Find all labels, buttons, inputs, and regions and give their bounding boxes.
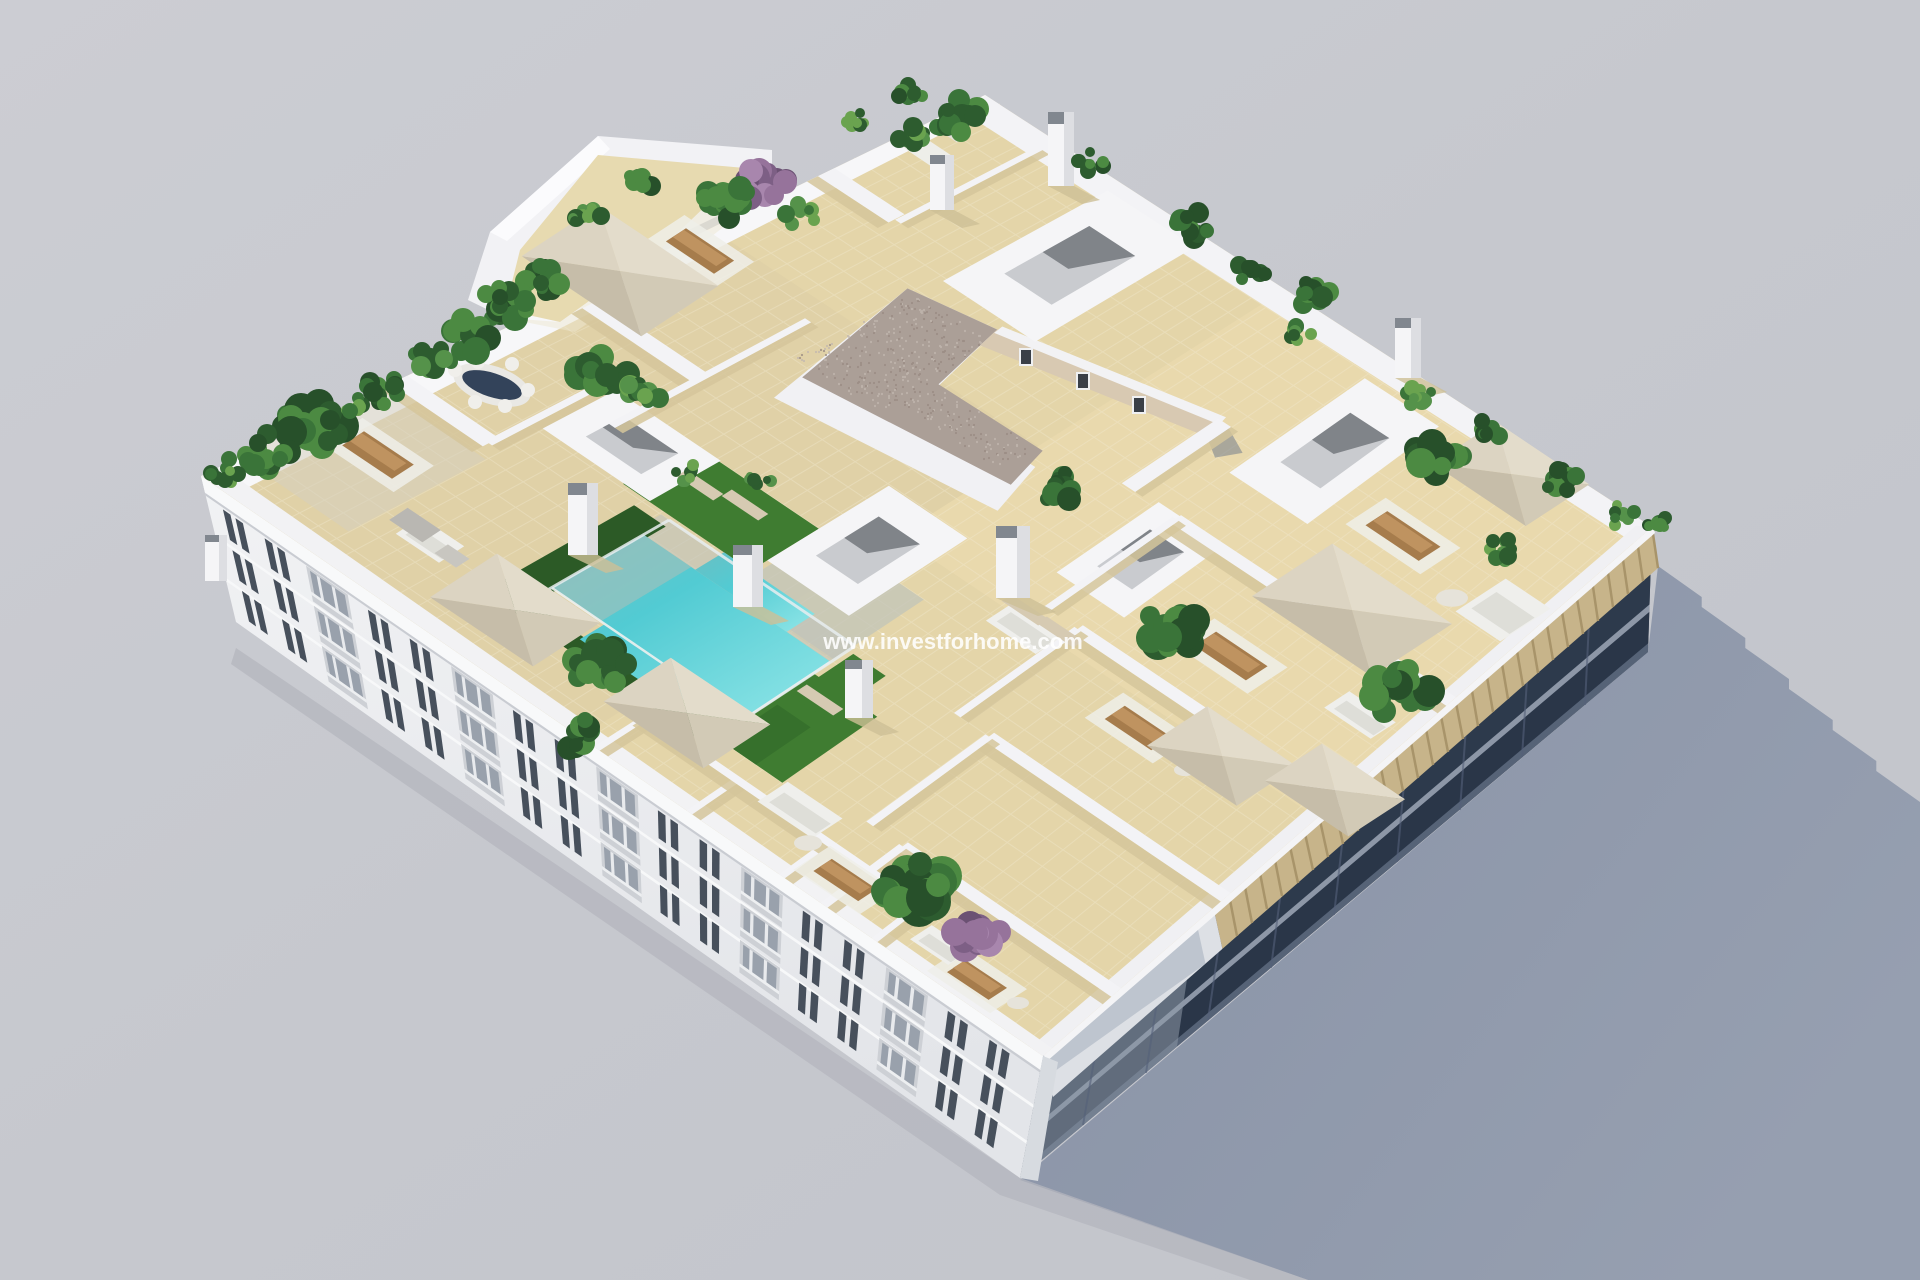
svg-text:www.investforhome.com: www.investforhome.com — [822, 629, 1083, 654]
